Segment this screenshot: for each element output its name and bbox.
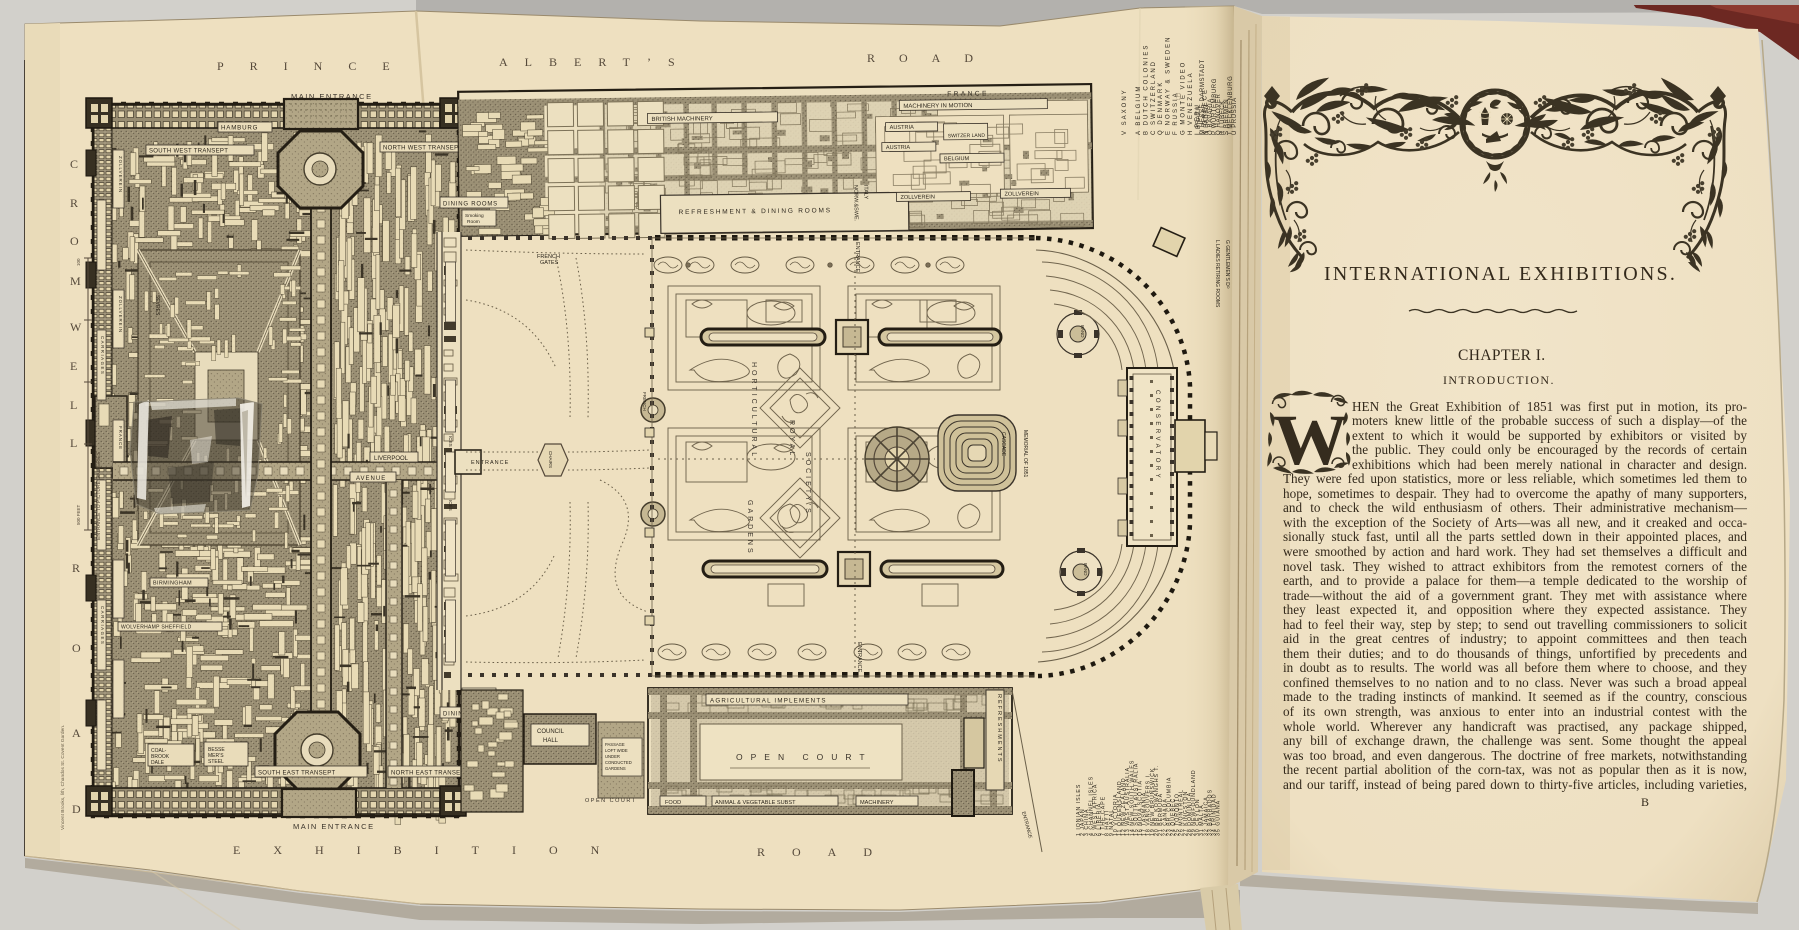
svg-text:STEEL: STEEL xyxy=(208,759,224,765)
svg-text:ALBERT’S: ALBERT’S xyxy=(499,55,692,69)
svg-text:BELGIUM: BELGIUM xyxy=(944,156,970,162)
svg-text:ICES: ICES xyxy=(448,436,453,447)
svg-text:SWITZER LAND: SWITZER LAND xyxy=(948,133,986,139)
svg-text:LIVERPOOL: LIVERPOOL xyxy=(374,456,409,462)
svg-text:SOUTH EAST TRANSEPT: SOUTH EAST TRANSEPT xyxy=(258,771,336,777)
svg-text:PRINCE: PRINCE xyxy=(217,59,416,73)
svg-text:L: L xyxy=(70,436,77,450)
svg-text:OPEN COURT: OPEN COURT xyxy=(736,752,873,762)
svg-text:NORTH WEST TRANSEPT: NORTH WEST TRANSEPT xyxy=(383,146,462,152)
svg-text:BIRMINGHAM: BIRMINGHAM xyxy=(153,581,192,587)
svg-text:ITALY: ITALY xyxy=(862,185,868,200)
svg-text:EXHIBITION: EXHIBITION xyxy=(233,843,632,857)
svg-text:GARDENS: GARDENS xyxy=(746,500,753,556)
svg-text:W: W xyxy=(70,320,82,334)
svg-text:HORTICULTURAL: HORTICULTURAL xyxy=(750,362,757,459)
svg-text:AGRICULTURAL IMPLEMENTS: AGRICULTURAL IMPLEMENTS xyxy=(710,698,827,705)
svg-text:Room: Room xyxy=(467,219,480,225)
svg-text:U PRUSSIA: U PRUSSIA xyxy=(1232,97,1238,135)
svg-text:ZOLLVEREIN: ZOLLVEREIN xyxy=(118,156,123,193)
svg-text:NORW.&SWE.: NORW.&SWE. xyxy=(852,185,858,222)
svg-text:ZOLLVEREIN: ZOLLVEREIN xyxy=(1004,191,1038,197)
svg-text:CASCADE: CASCADE xyxy=(1000,432,1006,457)
svg-text:OPEN COURT: OPEN COURT xyxy=(585,798,637,804)
svg-text:GARDENS: GARDENS xyxy=(605,766,626,771)
svg-text:ZOLLVEREIN: ZOLLVEREIN xyxy=(118,296,123,333)
svg-text:DALE: DALE xyxy=(151,760,165,766)
svg-text:ROAD: ROAD xyxy=(757,845,899,859)
svg-text:HALL: HALL xyxy=(543,738,559,744)
svg-text:B DUTCH COLONIES: B DUTCH COLONIES xyxy=(1143,44,1149,135)
svg-text:SOCIETY'S: SOCIETY'S xyxy=(804,452,811,516)
svg-text:R: R xyxy=(70,196,78,210)
svg-text:MACHINERY: MACHINERY xyxy=(860,800,894,806)
svg-text:CHAIRS: CHAIRS xyxy=(548,451,553,468)
svg-text:ENTRANCE TO PICTURE GALLERIES: ENTRANCE TO PICTURE GALLERIES xyxy=(96,451,102,540)
svg-text:BAND: BAND xyxy=(1080,325,1085,338)
svg-text:500 FEET: 500 FEET xyxy=(76,504,81,525)
svg-text:L LADIES RETIRING ROOMS: L LADIES RETIRING ROOMS xyxy=(1214,240,1220,308)
svg-text:C: C xyxy=(70,157,78,171)
svg-text:FRENCH: FRENCH xyxy=(642,392,647,411)
svg-text:ANIMAL & VEGETABLE SUBST: ANIMAL & VEGETABLE SUBST xyxy=(715,800,796,806)
svg-text:ICES: ICES xyxy=(448,500,453,511)
svg-text:PASSAGE: PASSAGE xyxy=(605,742,625,747)
svg-text:NORTH EAST TRANSEPT: NORTH EAST TRANSEPT xyxy=(391,771,469,777)
svg-text:O: O xyxy=(72,641,81,655)
svg-text:COUNCIL: COUNCIL xyxy=(537,729,565,735)
svg-text:E NORWAY & SWEDEN: E NORWAY & SWEDEN xyxy=(1166,36,1172,135)
svg-text:M: M xyxy=(70,274,81,288)
svg-text:FOOD: FOOD xyxy=(665,800,681,806)
svg-text:MACHINERY IN MOTION: MACHINERY IN MOTION xyxy=(903,103,972,110)
svg-text:REFRESHMENTS: REFRESHMENTS xyxy=(996,694,1002,764)
svg-text:V SAXONY: V SAXONY xyxy=(1122,88,1128,135)
svg-text:Q DENMARK: Q DENMARK xyxy=(1158,81,1164,135)
svg-text:LOFT WIDE: LOFT WIDE xyxy=(605,748,628,753)
svg-text:SOUTH WEST TRANSEPT: SOUTH WEST TRANSEPT xyxy=(149,149,228,155)
svg-text:ZOLLVEREIN: ZOLLVEREIN xyxy=(900,194,934,200)
svg-text:MAIN ENTRANCE: MAIN ENTRANCE xyxy=(293,822,375,831)
svg-text:MEMORIAL OF 1851: MEMORIAL OF 1851 xyxy=(1022,430,1028,478)
svg-text:BAND: BAND xyxy=(1083,563,1088,576)
svg-text:CARRIAGES: CARRIAGES xyxy=(100,606,105,645)
svg-text:O: O xyxy=(70,234,79,248)
svg-text:100: 100 xyxy=(76,258,81,266)
svg-text:FRANCE: FRANCE xyxy=(947,90,989,98)
svg-text:AUSTRIA: AUSTRIA xyxy=(890,125,915,131)
svg-text:L: L xyxy=(70,398,77,412)
svg-text:Vincent Brooks, lith, Chandos: Vincent Brooks, lith, Chandos St. Covent… xyxy=(60,725,66,830)
svg-text:FRANCE: FRANCE xyxy=(118,426,123,450)
svg-text:ENTRANCE: ENTRANCE xyxy=(471,460,509,466)
svg-text:DINING ROOMS: DINING ROOMS xyxy=(443,202,498,208)
svg-text:SEVRES: SEVRES xyxy=(154,295,160,316)
svg-text:9: 9 xyxy=(1176,91,1182,103)
svg-text:H VENEZUELA: H VENEZUELA xyxy=(1188,71,1194,135)
svg-text:C SWITZERLAND: C SWITZERLAND xyxy=(1151,60,1157,135)
svg-text:AVENUE: AVENUE xyxy=(356,476,386,482)
svg-text:WOLVERHAMP SHEFFIELD: WOLVERHAMP SHEFFIELD xyxy=(121,625,192,631)
svg-text:R: R xyxy=(72,561,80,575)
svg-text:35 GUIANA: 35 GUIANA xyxy=(1216,800,1222,836)
svg-text:E: E xyxy=(70,359,77,373)
svg-text:HAMBURG: HAMBURG xyxy=(221,125,258,132)
svg-text:CARRIAGES: CARRIAGES xyxy=(100,336,105,375)
svg-text:ENTRANCE: ENTRANCE xyxy=(856,642,862,673)
svg-text:G GENTLEMEN’S Dᴼ: G GENTLEMEN’S Dᴼ xyxy=(1224,240,1230,289)
svg-text:UNDER: UNDER xyxy=(605,754,620,759)
svg-text:ROYAL: ROYAL xyxy=(788,420,795,458)
svg-text:BRITISH MACHINERY: BRITISH MACHINERY xyxy=(651,116,712,123)
svg-text:D: D xyxy=(72,802,81,816)
svg-text:A BELGIUM: A BELGIUM xyxy=(1136,85,1142,135)
svg-text:ENTRANCE: ENTRANCE xyxy=(854,242,860,273)
svg-text:CONDUCTED: CONDUCTED xyxy=(605,760,632,765)
svg-text:AUSTRIA: AUSTRIA xyxy=(886,145,911,151)
svg-text:ROAD: ROAD xyxy=(867,51,997,65)
svg-text:CONSERVATORY: CONSERVATORY xyxy=(1154,390,1160,481)
svg-text:Smoking: Smoking xyxy=(465,213,484,219)
svg-text:A: A xyxy=(72,726,81,740)
svg-text:GATES: GATES xyxy=(540,260,559,266)
